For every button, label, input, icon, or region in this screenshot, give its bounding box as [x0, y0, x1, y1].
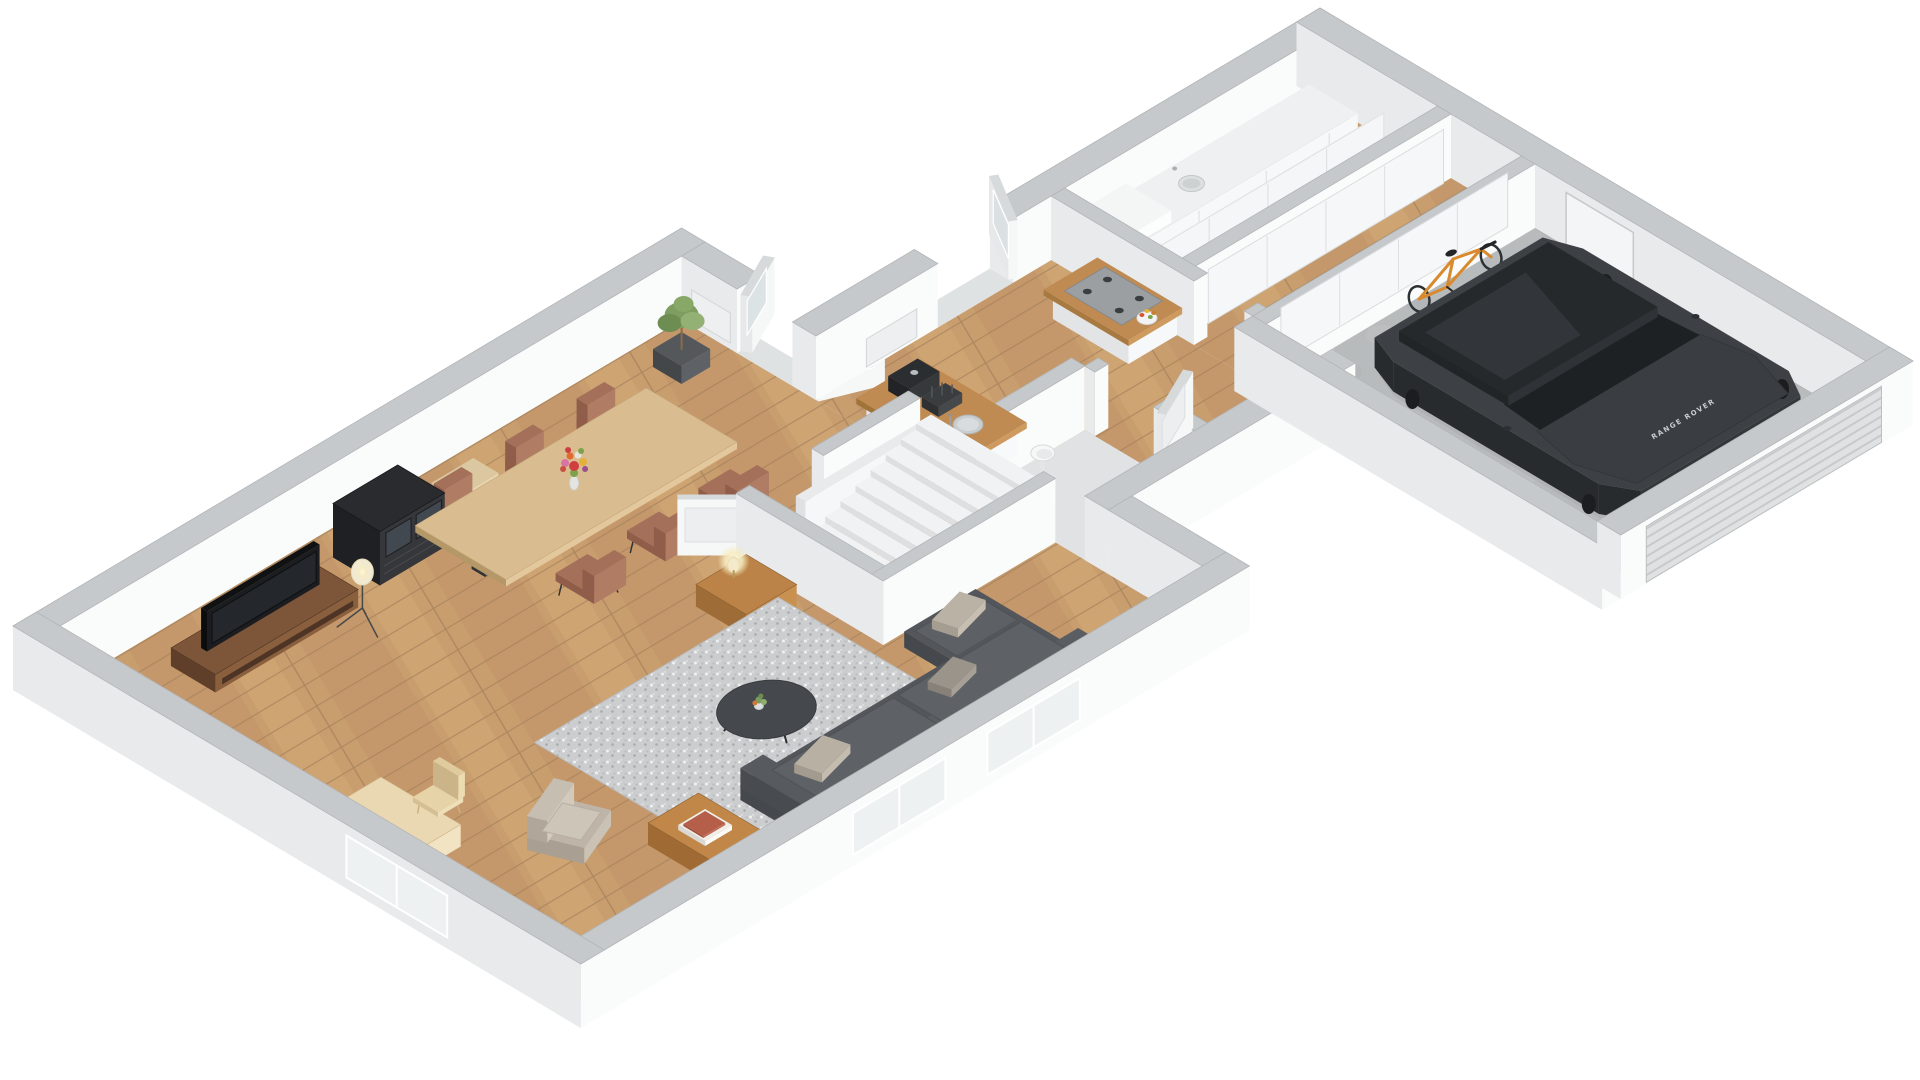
coffee-table-plant	[758, 694, 763, 699]
front-door-leaf-side	[1008, 220, 1017, 280]
fruit	[1139, 313, 1144, 317]
wc-ne-wall-side	[1085, 366, 1095, 436]
car-wheel	[1405, 389, 1419, 409]
fruit	[1148, 315, 1153, 319]
hob-burner	[1115, 308, 1124, 314]
flower-bouquet	[578, 448, 584, 454]
stairs-door-panel	[685, 508, 742, 542]
potted-plant-foliage	[658, 314, 682, 332]
coffee-table-plant	[761, 699, 767, 705]
flower-vase	[570, 476, 579, 490]
flower-bouquet	[565, 447, 571, 453]
potted-plant-foliage	[674, 296, 694, 312]
flower-bouquet	[560, 466, 566, 472]
flower-bouquet	[579, 458, 587, 466]
coffee-machine-chrome	[910, 370, 918, 375]
car-wheel	[1582, 494, 1596, 514]
potted-plant-foliage	[681, 312, 705, 330]
kitchen-faucet-head	[948, 414, 952, 417]
stairs-se-wall-side	[871, 574, 883, 645]
floor-plan-3d: RANGE ROVER	[0, 0, 1920, 1080]
car-mirror	[1691, 314, 1699, 319]
car-mirror	[1503, 426, 1511, 431]
flower-bouquet	[561, 459, 569, 467]
hob-burner	[1103, 277, 1112, 283]
scene-svg: RANGE ROVER	[0, 0, 1920, 1080]
desk-chair-back-side	[458, 772, 465, 800]
wc-basin-bowl	[1036, 449, 1052, 459]
hob-burner	[1083, 289, 1092, 295]
coffee-table-plant	[752, 701, 757, 706]
fruit	[1144, 309, 1149, 313]
kitchen-sink-bowl	[957, 418, 979, 431]
utility-faucet	[1172, 167, 1177, 171]
flower-bouquet	[569, 461, 579, 471]
flower-bouquet	[567, 453, 574, 460]
flower-bouquet	[582, 466, 588, 472]
utility-sink-bowl	[1182, 179, 1200, 189]
hall-divider-wall-side	[1194, 273, 1207, 345]
hob-burner	[1135, 296, 1144, 302]
tv-side	[201, 608, 207, 652]
fruit	[1151, 311, 1156, 315]
floor-lamp-glow	[356, 564, 368, 580]
wc-ne-wall-side	[1095, 364, 1108, 436]
